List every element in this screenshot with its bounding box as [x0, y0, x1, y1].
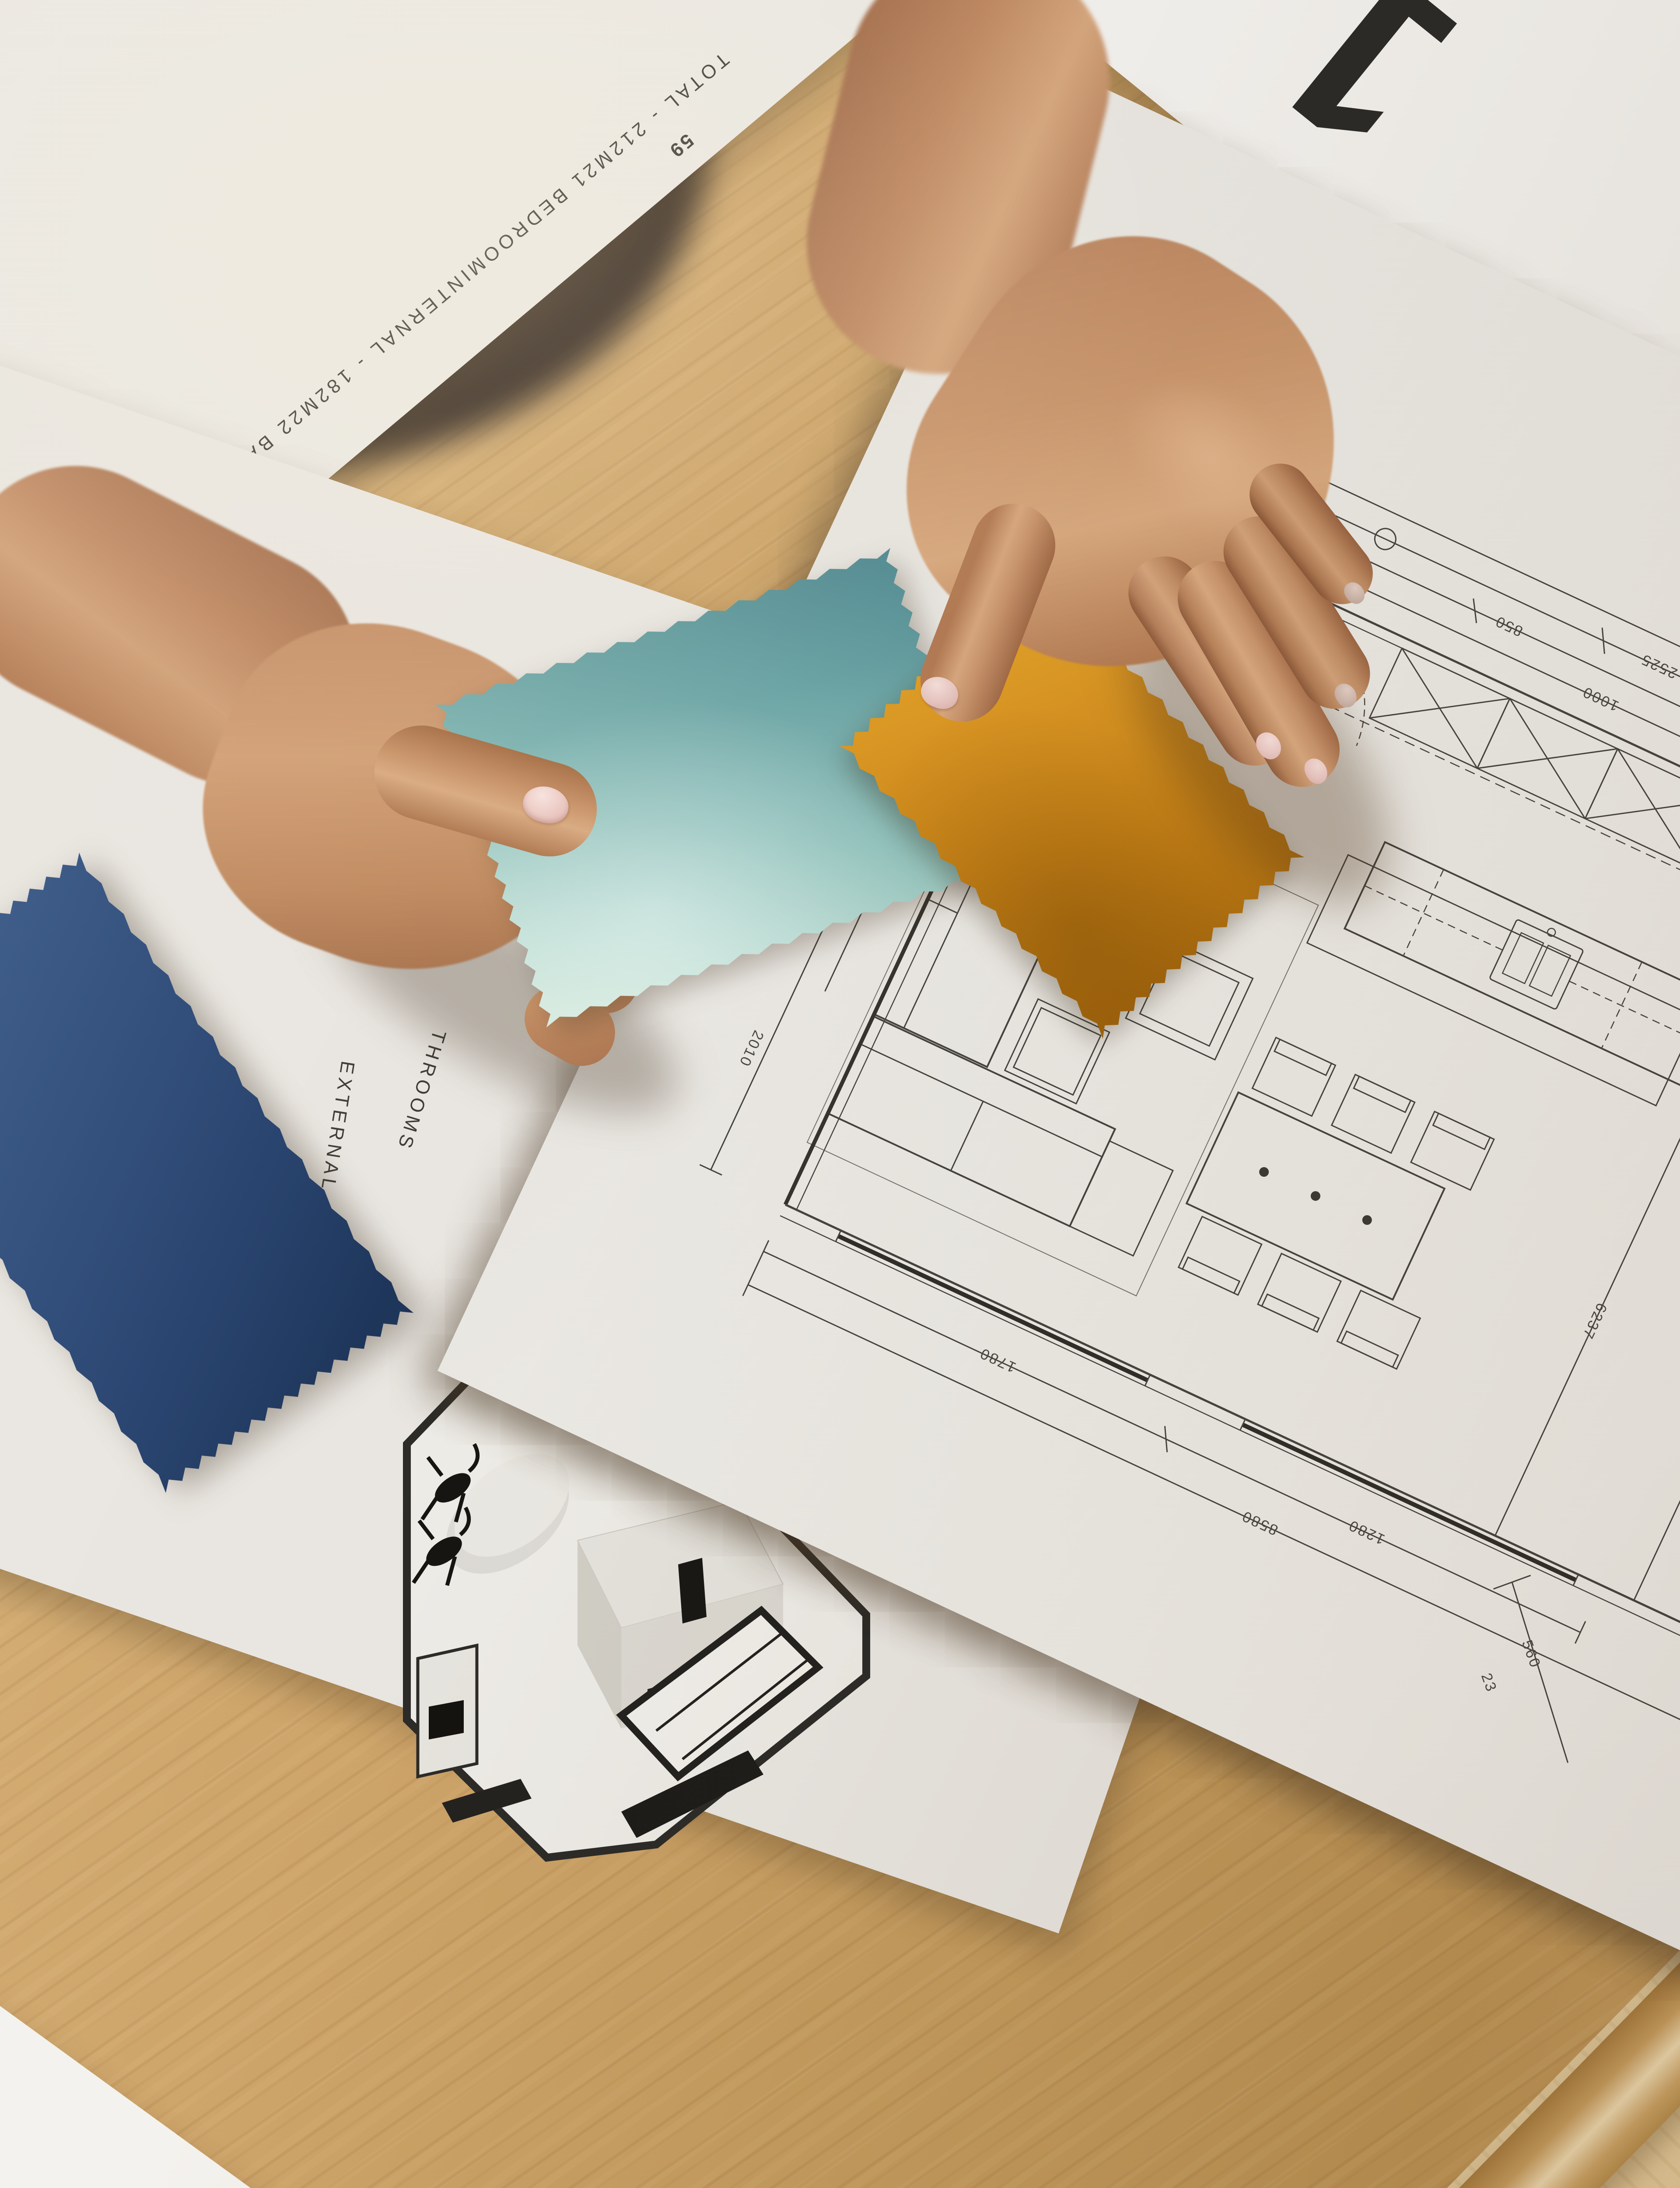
- svg-text:1780: 1780: [977, 1344, 1018, 1375]
- svg-text:8580: 8580: [1239, 1507, 1281, 1538]
- svg-text:2525: 2525: [1638, 651, 1680, 682]
- spec-item-total: TOTAL - 212M2: [576, 48, 733, 185]
- cover-numeral: 1: [1232, 0, 1492, 194]
- svg-text:2010: 2010: [736, 1028, 767, 1069]
- svg-text:850: 850: [1492, 613, 1526, 640]
- svg-text:1000: 1000: [1579, 683, 1621, 714]
- axon-door-slab: [678, 1558, 707, 1623]
- plan-right-wing: [1416, 796, 1680, 1734]
- svg-text:6237: 6237: [1579, 1301, 1610, 1342]
- plan-dining-set: [1161, 1033, 1502, 1369]
- svg-text:1280: 1280: [1345, 1516, 1387, 1547]
- photo-scene: TOTAL - 212M2 1 BEDROOM INTERNAL - 182M2…: [0, 0, 1680, 2188]
- svg-text:560: 560: [1519, 1638, 1544, 1671]
- svg-text:23: 23: [1478, 1671, 1500, 1694]
- blank-sheet-1: [0, 1932, 429, 2188]
- spec-item-bedroom: 1 BEDROOM: [460, 168, 590, 282]
- page-number: 59: [664, 129, 697, 162]
